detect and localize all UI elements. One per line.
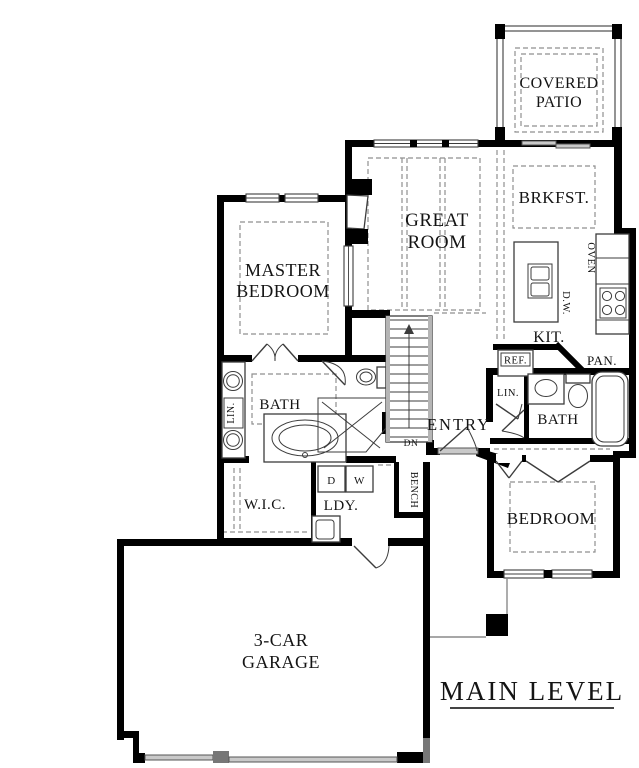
bench-label: BENCH [408, 472, 419, 508]
hall-bath: LIN. BATH [496, 372, 628, 446]
refrigerator-label: REF. [504, 356, 527, 367]
garage-label-line2: GARAGE [242, 652, 320, 672]
front-door [438, 448, 478, 454]
kitchen: OVEN D.W. KIT. REF. PAN. [498, 234, 629, 376]
great-room-label-line2: ROOM [407, 232, 466, 253]
plan-title: MAIN LEVEL [440, 676, 624, 708]
plan-title-text: MAIN LEVEL [440, 676, 624, 706]
garage: 3-CAR GARAGE [242, 630, 320, 672]
floor-plan-page: COVERED PATIO [0, 0, 639, 768]
kitchen-island [514, 242, 558, 322]
master-bedroom: MASTER BEDROOM [236, 260, 330, 361]
porch-column [486, 614, 508, 636]
bedroom-2-label: BEDROOM [507, 509, 596, 528]
covered-patio-label-line2: PATIO [536, 94, 582, 111]
walkway [430, 578, 508, 637]
hall-bath-label: BATH [537, 412, 578, 428]
covered-patio-label-line1: COVERED [519, 75, 598, 92]
walls [117, 140, 636, 763]
hall-bath-vanity [528, 374, 564, 404]
hall-bathtub [592, 372, 628, 446]
master-tub-platform [264, 414, 346, 462]
master-bath-label: BATH [259, 397, 300, 413]
dishwasher-label: D.W. [560, 291, 571, 315]
garage-label-line1: 3-CAR [254, 630, 309, 650]
floor-plan-drawing: COVERED PATIO [0, 0, 639, 768]
stairs-dn-label: DN [404, 439, 419, 449]
oven-label: OVEN [585, 242, 596, 273]
entry-label: ENTRY [427, 415, 491, 434]
brkfst-label: BRKFST. [519, 188, 590, 207]
master-toilet [377, 367, 386, 388]
hall-linen-label: LIN. [497, 388, 519, 399]
great-room-label-line1: GREAT [405, 210, 469, 231]
master-bedroom-label-line1: MASTER [245, 260, 321, 280]
entry: ENTRY [427, 415, 491, 434]
breakfast-nook: BRKFST. [519, 188, 590, 207]
laundry-label: LDY. [324, 498, 359, 514]
stairs: DN [386, 316, 432, 449]
washer-label: W [354, 475, 365, 487]
garage-door-single [145, 755, 213, 760]
bedroom-2: BEDROOM [496, 454, 595, 528]
master-bedroom-label-line2: BEDROOM [236, 281, 330, 301]
wic-laundry: W.I.C. D W LDY. BENCH [244, 466, 419, 542]
garage-door-double [229, 757, 397, 762]
dryer-label: D [327, 475, 335, 487]
kitchen-label: KIT. [533, 329, 564, 346]
wic-label: W.I.C. [244, 497, 286, 513]
master-linen-label: LIN. [226, 402, 237, 423]
master-bath: LIN. BATH [222, 361, 386, 462]
fireplace [347, 195, 368, 229]
pantry-angled-wall [556, 344, 584, 372]
pantry-label: PAN. [587, 353, 617, 368]
hall-toilet [566, 374, 590, 383]
